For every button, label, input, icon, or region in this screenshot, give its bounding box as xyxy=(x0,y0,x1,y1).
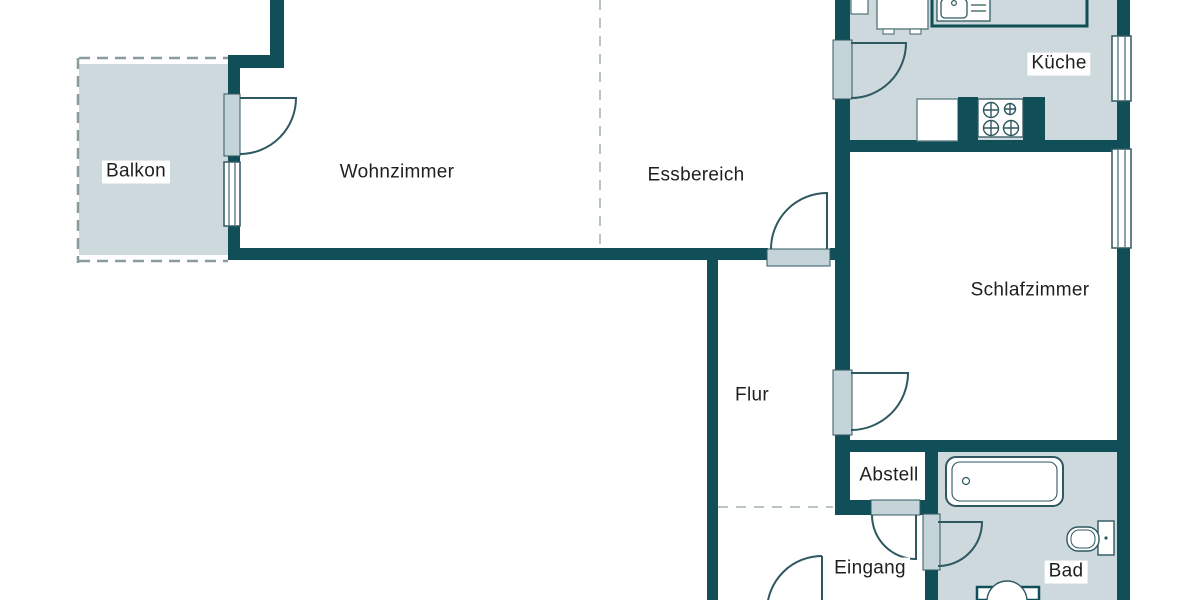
label-flur: Flur xyxy=(731,385,773,408)
door-abstell xyxy=(872,515,916,559)
kitchen-counter-bottom xyxy=(917,97,1045,142)
door-jambs xyxy=(224,0,940,570)
label-wohnzimmer: Wohnzimmer xyxy=(336,162,459,185)
door-eingang-entrance xyxy=(767,556,822,600)
bathtub-icon xyxy=(946,457,1063,506)
label-kueche: Küche xyxy=(1027,53,1090,76)
window-schlafzimmer xyxy=(1112,149,1131,248)
window-balkon xyxy=(224,162,240,226)
label-eingang: Eingang xyxy=(830,558,910,581)
jamb-abstell-door xyxy=(871,500,920,515)
jamb-kueche-top-opening xyxy=(851,0,868,14)
door-balkon xyxy=(240,98,296,154)
label-essbereich: Essbereich xyxy=(644,165,749,188)
window-kueche xyxy=(1112,36,1131,101)
jamb-bad-door xyxy=(923,514,940,570)
label-abstell: Abstell xyxy=(855,465,922,488)
label-balkon: Balkon xyxy=(102,161,170,184)
label-bad: Bad xyxy=(1045,561,1088,584)
kitchen-counter-top xyxy=(932,0,1087,26)
jamb-kueche-door xyxy=(833,40,852,99)
cabinet xyxy=(917,99,958,141)
door-schlafzimmer xyxy=(851,373,908,430)
fridge-icon xyxy=(877,0,928,34)
stove-icon xyxy=(978,99,1023,137)
jamb-schlafzimmer-door xyxy=(833,370,852,435)
kitchen-sink-icon xyxy=(937,0,990,21)
jamb-balkon-door xyxy=(224,94,240,156)
balkon-floor xyxy=(79,64,228,255)
jamb-essbereich-door xyxy=(767,249,830,266)
door-essbereich-flur xyxy=(771,193,827,249)
floor-plan-page: Balkon Wohnzimmer Essbereich Küche Schla… xyxy=(0,0,1200,600)
label-schlafzimmer: Schlafzimmer xyxy=(967,280,1094,303)
